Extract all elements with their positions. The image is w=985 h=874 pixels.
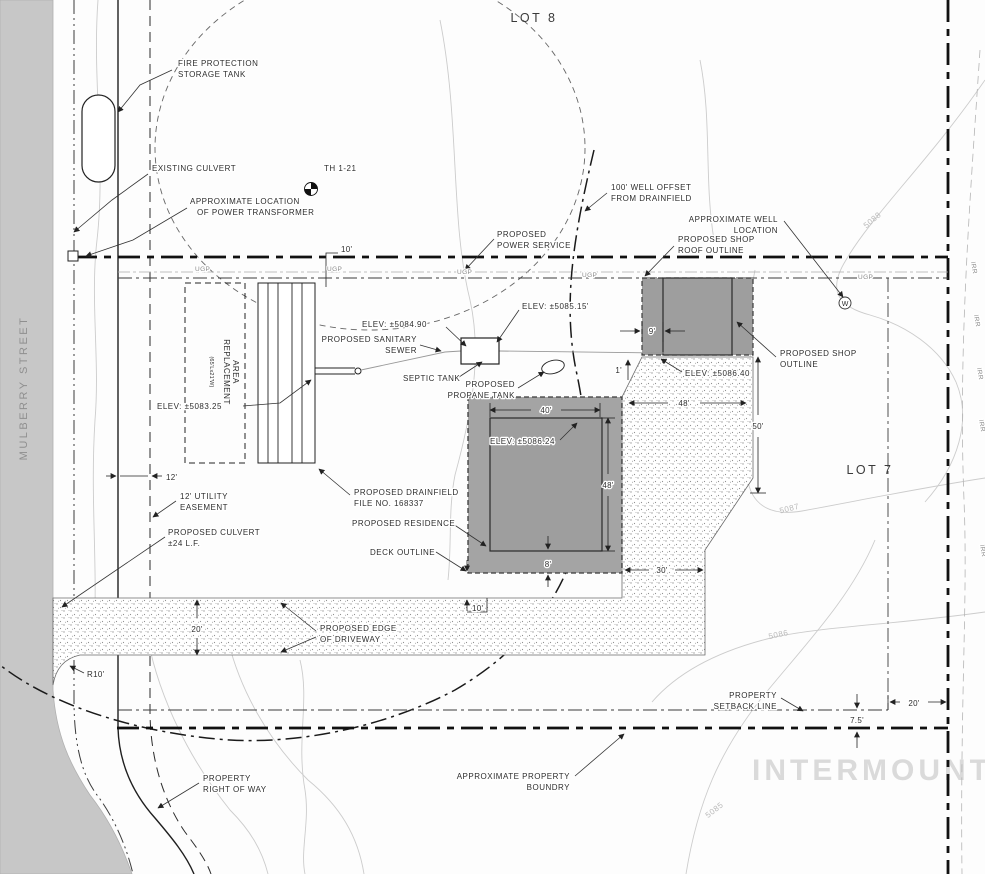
lot8-label: LOT 8 (510, 11, 557, 25)
dim-easement-label: 12' (166, 473, 177, 482)
property-boundary-label: BOUNDRY (527, 783, 571, 792)
fire-protection-tank (82, 95, 115, 182)
propane-tank-label: PROPANE TANK (448, 391, 516, 400)
dim-drive-east-label: 48' (678, 399, 689, 408)
dim-radius-label: R10' (87, 670, 105, 679)
dim-res-depth-label: 48' (602, 481, 613, 490)
transformer-label: OF POWER TRANSFORMER (197, 208, 314, 217)
dim-res-width-label: 40' (540, 406, 551, 415)
replacement-area-label: REPLACEMENT (222, 339, 231, 405)
dim-setback-east-label: 20' (908, 699, 919, 708)
elev-septic-b-label: ELEV: ±5084.90 (362, 320, 427, 329)
well-symbol-letter: W (842, 301, 849, 308)
shop-roof-label: ROOF OUTLINE (678, 246, 744, 255)
septic-tank (461, 338, 499, 364)
watermark-text: INTERMOUNTAIN (752, 754, 985, 787)
shop-outline-label: PROPOSED SHOP (780, 349, 857, 358)
dim-shop-gap-label: 1' (615, 366, 622, 375)
replacement-area-size-label: (65'Lx21'W) (208, 356, 214, 387)
dim-deck-south-label: 8' (545, 560, 552, 569)
sanitary-sewer-label: SEWER (385, 346, 417, 355)
proposed-drainfield (258, 283, 315, 463)
test-hole-symbol (305, 183, 318, 196)
driveway-edge-label: PROPOSED EDGE (320, 624, 397, 633)
existing-culvert-label: EXISTING CULVERT (152, 164, 236, 173)
dim-deck-drive-gap-label: 10' (472, 604, 483, 613)
proposed-shop (663, 278, 732, 355)
transformer-label: APPROXIMATE LOCATION (190, 197, 300, 206)
dim-drive-width-label: 20' (191, 625, 202, 634)
utility-easement-label: EASEMENT (180, 503, 228, 512)
site-plan-svg: INTERMOUNTAIN (0, 0, 985, 874)
proposed-culvert-label: PROPOSED CULVERT (168, 528, 260, 537)
shop-roof-label: PROPOSED SHOP (678, 235, 755, 244)
dim-setback-south-label: 7.5' (850, 716, 864, 725)
ugp-label: UGP (858, 274, 873, 281)
ugp-label: UGP (195, 266, 210, 273)
setback-label: PROPERTY (729, 691, 777, 700)
lot7-label: LOT 7 (846, 463, 893, 477)
property-boundary-label: APPROXIMATE PROPERTY (457, 772, 570, 781)
drainfield-label: PROPOSED DRAINFIELD (354, 488, 459, 497)
well-offset-label: FROM DRAINFIELD (611, 194, 692, 203)
ugp-label: UGP (457, 269, 472, 276)
ugp-label: UGP (582, 272, 597, 279)
dim-power-offset-label: 10' (341, 245, 352, 254)
well-offset-label: 100' WELL OFFSET (611, 183, 691, 192)
power-service-label: POWER SERVICE (497, 241, 571, 250)
fire-tank-label: STORAGE TANK (178, 70, 246, 79)
proposed-culvert-label: ±24 L.F. (168, 539, 200, 548)
power-transformer-box (68, 251, 78, 261)
well-location-label: LOCATION (734, 226, 778, 235)
dim-drive-leg-label: 30' (656, 566, 667, 575)
elev-replacement-label: ELEV: ±5083.25 (157, 402, 222, 411)
septic-tank-label: SEPTIC TANK (403, 374, 460, 383)
ugp-label: UGP (327, 266, 342, 273)
sanitary-sewer-label: PROPOSED SANITARY (322, 335, 418, 344)
elev-residence-label: ELEV: ±5086.24 (490, 437, 555, 446)
residence-label: PROPOSED RESIDENCE (352, 519, 455, 528)
elev-shop-label: ELEV: ±5086.40 (685, 369, 750, 378)
test-hole-label: TH 1-21 (324, 164, 356, 173)
site-plan-drawing: INTERMOUNTAIN (0, 0, 985, 874)
driveway-edge-label: OF DRIVEWAY (320, 635, 381, 644)
dim-shop-side-label: 50' (752, 422, 763, 431)
setback-label: SETBACK LINE (714, 702, 777, 711)
dim-shop-overhang-label: 9' (649, 327, 656, 336)
well-symbol: W (839, 297, 851, 309)
shop-outline-label: OUTLINE (780, 360, 818, 369)
replacement-area-label: AREA (231, 360, 240, 384)
right-of-way-label: PROPERTY (203, 774, 251, 783)
fire-tank-label: FIRE PROTECTION (178, 59, 258, 68)
drainfield-label: FILE NO. 168337 (354, 499, 424, 508)
distribution-box (355, 368, 361, 374)
elev-septic-a-label: ELEV: ±5085.15' (522, 302, 589, 311)
well-location-label: APPROXIMATE WELL (689, 215, 778, 224)
utility-easement-label: 12' UTILITY (180, 492, 228, 501)
deck-label: DECK OUTLINE (370, 548, 435, 557)
propane-tank-label: PROPOSED (466, 380, 515, 389)
right-of-way-label: RIGHT OF WAY (203, 785, 267, 794)
street-name-label: MULBERRY STREET (18, 316, 30, 461)
power-service-label: PROPOSED (497, 230, 546, 239)
